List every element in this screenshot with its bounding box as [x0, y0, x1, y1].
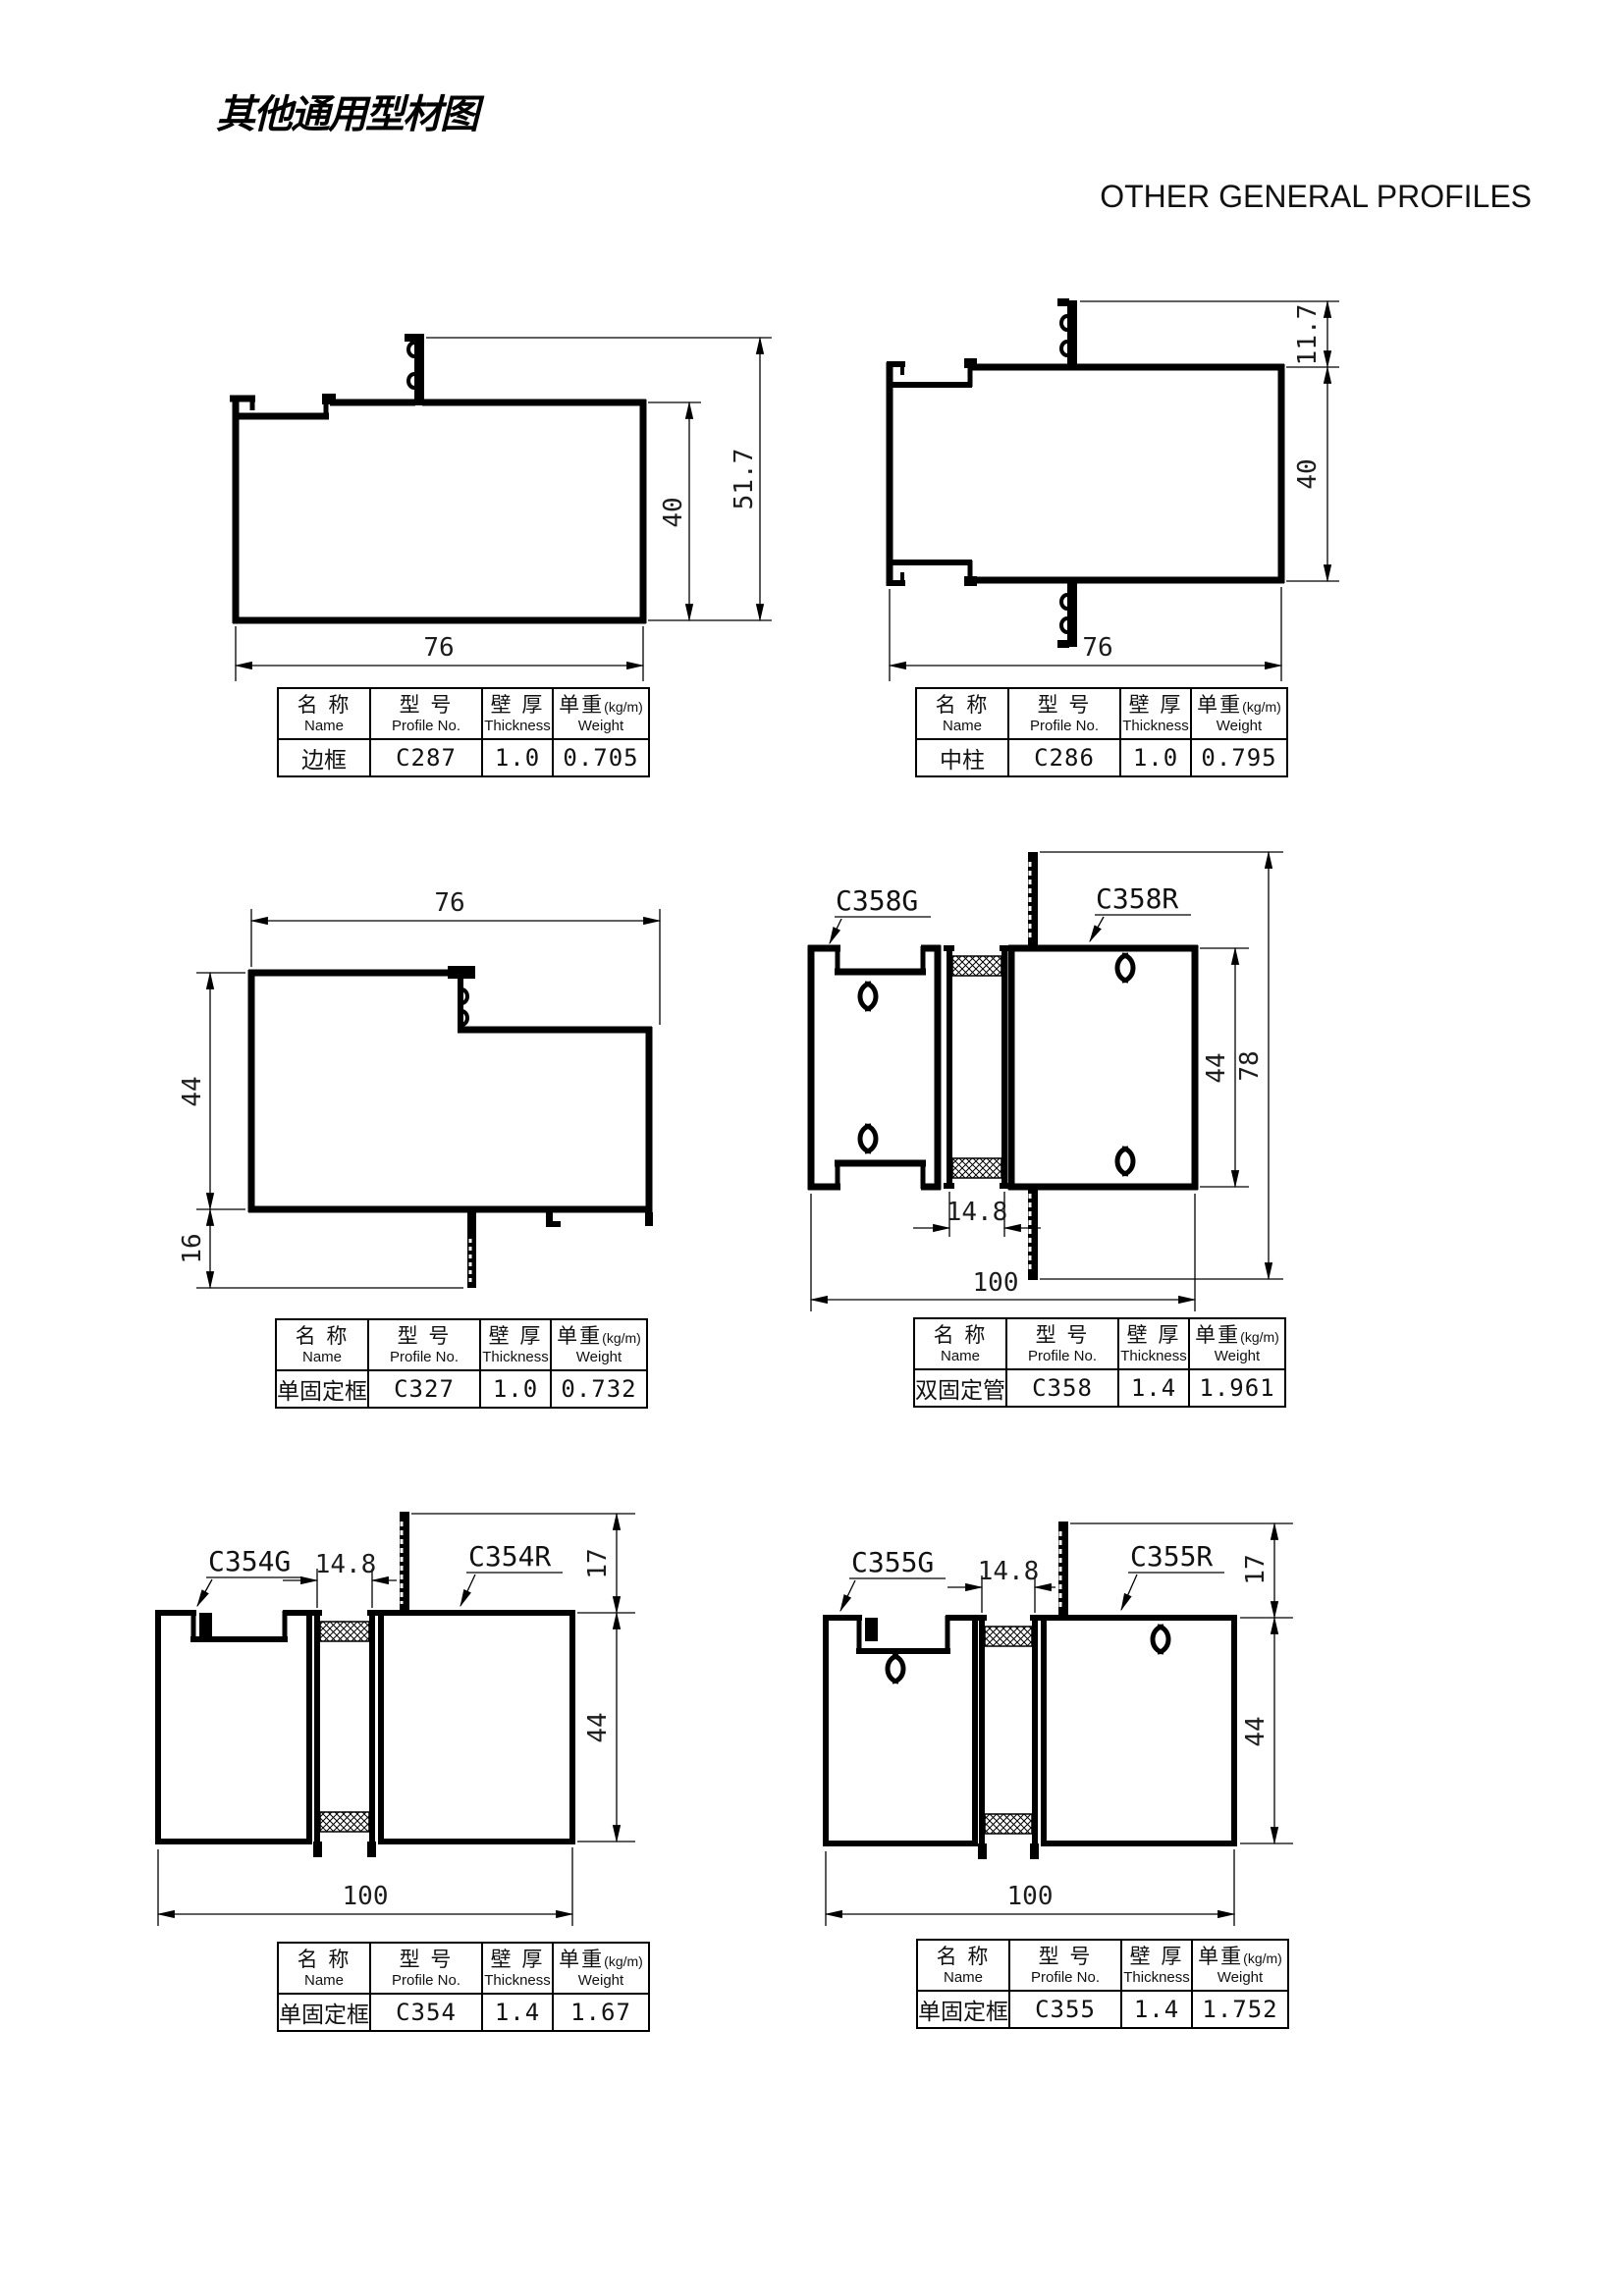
cell-profile-no: C358	[1006, 1369, 1118, 1407]
header-weight: 单重(kg/m)Weight	[553, 688, 649, 739]
header-thickness: 壁 厚Thickness	[482, 1943, 553, 1994]
profile-drawing-c354: C354G C354R 14.8 17 44 100	[155, 1512, 635, 1926]
spec-table-c327: 名 称Name 型 号Profile No. 壁 厚Thickness 单重(k…	[275, 1318, 648, 1409]
dim-c354-fin: 17	[583, 1548, 613, 1578]
dim-c355-height: 44	[1241, 1716, 1271, 1746]
header-weight: 单重(kg/m)Weight	[553, 1943, 649, 1994]
label-c358r: C358R	[1096, 882, 1178, 915]
header-thickness: 壁 厚Thickness	[1118, 1318, 1189, 1369]
spec-data-row: 单固定框 C355 1.4 1.752	[917, 1991, 1288, 2028]
header-name: 名 称Name	[914, 1318, 1006, 1369]
spec-table-c287: 名 称Name 型 号Profile No. 壁 厚Thickness 单重(k…	[277, 687, 650, 777]
catalog-page: 其他通用型材图 OTHER GENERAL PROFILES	[0, 0, 1623, 2296]
header-weight: 单重(kg/m)Weight	[551, 1319, 647, 1370]
cell-name: 单固定框	[278, 1994, 370, 2031]
dim-c354-height: 44	[583, 1712, 613, 1742]
cell-profile-no: C287	[370, 739, 482, 776]
cell-thickness: 1.0	[1120, 739, 1191, 776]
cell-name: 中柱	[916, 739, 1008, 776]
cell-weight: 0.732	[551, 1370, 647, 1408]
dim-c327-width: 76	[434, 888, 464, 918]
header-thickness: 壁 厚Thickness	[1120, 688, 1191, 739]
cell-profile-no: C355	[1009, 1991, 1121, 2028]
cell-thickness: 1.0	[480, 1370, 551, 1408]
dim-c286-height: 40	[1293, 458, 1323, 489]
dim-c358-overall: 78	[1235, 1050, 1265, 1081]
header-name: 名 称Name	[917, 1940, 1009, 1991]
profile-drawing-c355: C355G C355R 14.8 17 44 100	[823, 1522, 1293, 1926]
header-weight: 单重(kg/m)Weight	[1189, 1318, 1285, 1369]
cell-thickness: 1.4	[1121, 1991, 1192, 2028]
cell-profile-no: C286	[1008, 739, 1120, 776]
spec-table-c355: 名 称Name 型 号Profile No. 壁 厚Thickness 单重(k…	[916, 1939, 1289, 2029]
label-c355r: C355R	[1130, 1540, 1213, 1573]
dim-c287-inner-height: 40	[659, 497, 688, 527]
profile-drawing-c358: C358G C358R 14.8 100 44 78	[808, 852, 1283, 1311]
header-profile-no: 型 号Profile No.	[370, 688, 482, 739]
spec-table-c286: 名 称Name 型 号Profile No. 壁 厚Thickness 单重(k…	[915, 687, 1288, 777]
cell-weight: 0.705	[553, 739, 649, 776]
header-profile-no: 型 号Profile No.	[368, 1319, 480, 1370]
dim-c286-fin: 11.7	[1293, 304, 1323, 366]
header-thickness: 壁 厚Thickness	[482, 688, 553, 739]
header-name: 名 称Name	[916, 688, 1008, 739]
spec-data-row: 单固定框 C354 1.4 1.67	[278, 1994, 649, 2031]
header-name: 名 称Name	[278, 688, 370, 739]
label-c358g: C358G	[836, 884, 918, 917]
header-weight: 单重(kg/m)Weight	[1191, 688, 1287, 739]
dim-c287-overall-height: 51.7	[730, 449, 759, 510]
cell-profile-no: C354	[370, 1994, 482, 2031]
spec-header-row: 名 称Name 型 号Profile No. 壁 厚Thickness 单重(k…	[917, 1940, 1288, 1991]
header-profile-no: 型 号Profile No.	[1008, 688, 1120, 739]
dim-c287-width: 76	[423, 633, 454, 663]
cell-weight: 1.961	[1189, 1369, 1285, 1407]
cell-thickness: 1.0	[482, 739, 553, 776]
spec-data-row: 双固定管 C358 1.4 1.961	[914, 1369, 1285, 1407]
header-thickness: 壁 厚Thickness	[1121, 1940, 1192, 1991]
spec-data-row: 边框 C287 1.0 0.705	[278, 739, 649, 776]
dim-c327-height: 44	[178, 1076, 207, 1106]
header-name: 名 称Name	[276, 1319, 368, 1370]
cell-thickness: 1.4	[1118, 1369, 1189, 1407]
dim-c355-fin: 17	[1241, 1554, 1271, 1584]
cell-profile-no: C327	[368, 1370, 480, 1408]
header-thickness: 壁 厚Thickness	[480, 1319, 551, 1370]
dim-c358-width: 100	[973, 1268, 1019, 1298]
cell-name: 双固定管	[914, 1369, 1006, 1407]
cell-weight: 1.752	[1192, 1991, 1288, 2028]
spec-table-c354: 名 称Name 型 号Profile No. 壁 厚Thickness 单重(k…	[277, 1942, 650, 2032]
spec-header-row: 名 称Name 型 号Profile No. 壁 厚Thickness 单重(k…	[276, 1319, 647, 1370]
spec-header-row: 名 称Name 型 号Profile No. 壁 厚Thickness 单重(k…	[278, 688, 649, 739]
dim-c327-leg: 16	[178, 1233, 207, 1263]
dim-c355-gap: 14.8	[978, 1557, 1040, 1586]
spec-header-row: 名 称Name 型 号Profile No. 壁 厚Thickness 单重(k…	[916, 688, 1287, 739]
label-c354g: C354G	[208, 1545, 291, 1577]
profile-drawing-c327: 76 44 16	[178, 888, 660, 1288]
dim-c286-width: 76	[1082, 633, 1112, 663]
dim-c354-gap: 14.8	[315, 1550, 377, 1579]
spec-header-row: 名 称Name 型 号Profile No. 壁 厚Thickness 单重(k…	[278, 1943, 649, 1994]
dim-c354-width: 100	[343, 1882, 389, 1911]
cell-weight: 1.67	[553, 1994, 649, 2031]
spec-data-row: 中柱 C286 1.0 0.795	[916, 739, 1287, 776]
cell-weight: 0.795	[1191, 739, 1287, 776]
cell-thickness: 1.4	[482, 1994, 553, 2031]
dim-c358-height: 44	[1202, 1052, 1231, 1083]
header-name: 名 称Name	[278, 1943, 370, 1994]
spec-table-c358: 名 称Name 型 号Profile No. 壁 厚Thickness 单重(k…	[913, 1317, 1286, 1408]
header-profile-no: 型 号Profile No.	[370, 1943, 482, 1994]
label-c355g: C355G	[851, 1546, 934, 1578]
profile-drawing-c287: 76 40 51.7	[230, 334, 772, 681]
label-c354r: C354R	[468, 1540, 551, 1573]
cell-name: 单固定框	[917, 1991, 1009, 2028]
header-profile-no: 型 号Profile No.	[1009, 1940, 1121, 1991]
cell-name: 边框	[278, 739, 370, 776]
header-profile-no: 型 号Profile No.	[1006, 1318, 1118, 1369]
cell-name: 单固定框	[276, 1370, 368, 1408]
dim-c358-gap: 14.8	[947, 1198, 1008, 1227]
technical-drawing-canvas: 76 40 51.7	[0, 0, 1623, 2296]
spec-data-row: 单固定框 C327 1.0 0.732	[276, 1370, 647, 1408]
header-weight: 单重(kg/m)Weight	[1192, 1940, 1288, 1991]
dim-c355-width: 100	[1007, 1882, 1054, 1911]
spec-header-row: 名 称Name 型 号Profile No. 壁 厚Thickness 单重(k…	[914, 1318, 1285, 1369]
profile-drawing-c286: 11.7 40 76	[887, 298, 1339, 681]
